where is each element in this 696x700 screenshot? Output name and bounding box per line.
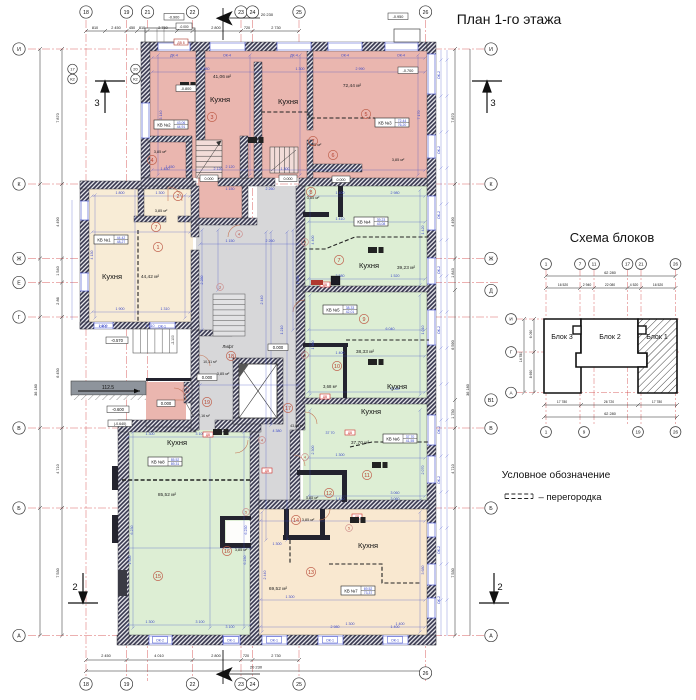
svg-text:Кухня: Кухня bbox=[361, 407, 381, 416]
svg-text:Ж: Ж bbox=[489, 256, 494, 262]
svg-text:2 070: 2 070 bbox=[421, 466, 425, 475]
svg-text:2 280: 2 280 bbox=[200, 276, 204, 285]
svg-text:1 450: 1 450 bbox=[161, 167, 170, 171]
svg-text:2 730: 2 730 bbox=[271, 654, 281, 658]
svg-text:1 310: 1 310 bbox=[146, 324, 155, 328]
svg-text:Блок 3: Блок 3 bbox=[551, 334, 573, 341]
svg-text:1 410: 1 410 bbox=[336, 497, 345, 501]
svg-text:В: В bbox=[489, 426, 493, 432]
svg-text:-0.700: -0.700 bbox=[403, 69, 414, 73]
svg-text:Ж: Ж bbox=[17, 256, 22, 262]
svg-text:ОК-2: ОК-2 bbox=[437, 146, 441, 154]
svg-text:26: 26 bbox=[423, 10, 429, 16]
svg-text:2 120: 2 120 bbox=[226, 165, 235, 169]
svg-text:0.000: 0.000 bbox=[202, 375, 213, 380]
svg-text:ДВ: ДВ bbox=[348, 431, 352, 435]
svg-text:Кухня: Кухня bbox=[167, 438, 187, 447]
svg-text:3: 3 bbox=[219, 285, 221, 289]
svg-text:К2: К2 bbox=[133, 76, 138, 81]
svg-text:16 520: 16 520 bbox=[558, 283, 568, 287]
svg-text:3,85 м²: 3,85 м² bbox=[306, 495, 319, 500]
svg-text:20 230: 20 230 bbox=[261, 12, 274, 17]
svg-text:2 730: 2 730 bbox=[271, 26, 281, 30]
svg-text:1 420: 1 420 bbox=[421, 226, 425, 235]
svg-text:8 690: 8 690 bbox=[529, 370, 533, 379]
svg-text:69,52 м²: 69,52 м² bbox=[269, 586, 288, 592]
svg-text:Кухня: Кухня bbox=[210, 95, 230, 104]
svg-text:6 040: 6 040 bbox=[386, 327, 395, 331]
svg-text:2 800: 2 800 bbox=[211, 654, 221, 658]
svg-text:Кухня: Кухня bbox=[278, 97, 298, 106]
svg-text:7 530: 7 530 bbox=[56, 568, 60, 578]
svg-text:3,85 м²: 3,85 м² bbox=[392, 157, 405, 162]
svg-text:-0.950: -0.950 bbox=[393, 15, 404, 19]
svg-text:85,52 м²: 85,52 м² bbox=[158, 492, 177, 498]
svg-text:Г: Г bbox=[18, 315, 21, 321]
svg-text:0.000: 0.000 bbox=[273, 345, 284, 350]
svg-text:-0.570: -0.570 bbox=[111, 338, 124, 343]
svg-text:1 410: 1 410 bbox=[336, 217, 345, 221]
svg-text:26: 26 bbox=[423, 671, 429, 677]
svg-text:4 710: 4 710 bbox=[451, 464, 455, 474]
svg-text:2 750: 2 750 bbox=[158, 26, 168, 30]
svg-text:2 120: 2 120 bbox=[214, 167, 223, 171]
svg-text:39,23: 39,23 bbox=[377, 218, 386, 222]
svg-text:Б: Б bbox=[489, 506, 493, 512]
svg-text:3,85 м²: 3,85 м² bbox=[302, 517, 315, 522]
svg-text:10: 10 bbox=[334, 364, 340, 370]
svg-text:1: 1 bbox=[545, 430, 548, 435]
svg-text:ОК-4: ОК-4 bbox=[397, 54, 405, 58]
svg-text:7 170: 7 170 bbox=[417, 111, 421, 120]
svg-text:20 230: 20 230 bbox=[250, 665, 263, 670]
svg-text:ОК-1: ОК-1 bbox=[158, 325, 166, 329]
svg-text:3 060: 3 060 bbox=[391, 491, 400, 495]
svg-text:7: 7 bbox=[312, 139, 315, 145]
svg-text:26: 26 bbox=[673, 262, 679, 267]
svg-text:1 500: 1 500 bbox=[128, 556, 132, 565]
svg-text:1 310: 1 310 bbox=[161, 307, 170, 311]
svg-text:-0.000: -0.000 bbox=[179, 25, 188, 29]
svg-text:7 870: 7 870 bbox=[451, 113, 455, 123]
svg-text:1 400: 1 400 bbox=[391, 625, 400, 629]
svg-text:0.000: 0.000 bbox=[205, 177, 214, 181]
svg-text:3,85 м²: 3,85 м² bbox=[235, 547, 248, 552]
svg-text:2 440: 2 440 bbox=[263, 571, 267, 580]
svg-text:2 940: 2 940 bbox=[583, 283, 592, 287]
svg-text:6 450: 6 450 bbox=[56, 368, 60, 378]
svg-text:5: 5 bbox=[365, 112, 368, 118]
svg-text:2 980: 2 980 bbox=[331, 625, 340, 629]
svg-text:ОК-1: ОК-1 bbox=[227, 639, 235, 643]
svg-text:0.000: 0.000 bbox=[284, 177, 293, 181]
svg-text:План 1-го этажа: План 1-го этажа bbox=[457, 11, 562, 27]
svg-text:89,31: 89,31 bbox=[171, 462, 180, 466]
svg-text:112.5: 112.5 bbox=[102, 385, 114, 391]
svg-text:43,08: 43,08 bbox=[377, 222, 386, 226]
svg-text:Б: Б bbox=[17, 506, 21, 512]
svg-text:2 440: 2 440 bbox=[260, 296, 264, 305]
svg-text:Лифт: Лифт bbox=[222, 344, 234, 349]
svg-text:72,44: 72,44 bbox=[398, 119, 407, 123]
svg-text:22: 22 bbox=[190, 10, 196, 16]
svg-text:69,52: 69,52 bbox=[364, 587, 373, 591]
svg-text:-0.600: -0.600 bbox=[112, 407, 125, 412]
svg-text:19: 19 bbox=[124, 10, 130, 16]
svg-text:1 980: 1 980 bbox=[311, 341, 315, 350]
svg-text:КВ №5: КВ №5 bbox=[326, 307, 340, 312]
svg-text:5: 5 bbox=[348, 526, 350, 530]
svg-text:18: 18 bbox=[83, 10, 89, 16]
svg-text:3,85 м²: 3,85 м² bbox=[154, 149, 167, 154]
svg-text:2: 2 bbox=[497, 582, 502, 593]
svg-text:43,06: 43,06 bbox=[177, 121, 186, 125]
svg-text:В1: В1 bbox=[488, 398, 494, 404]
svg-text:1 300: 1 300 bbox=[146, 620, 155, 624]
svg-text:17: 17 bbox=[625, 262, 631, 267]
svg-text:19: 19 bbox=[635, 430, 641, 435]
svg-text:4 490: 4 490 bbox=[56, 217, 60, 227]
svg-text:4 130: 4 130 bbox=[90, 251, 94, 260]
svg-text:37,70: 37,70 bbox=[406, 435, 415, 439]
svg-text:2 980: 2 980 bbox=[391, 191, 400, 195]
svg-text:Кухня: Кухня bbox=[387, 382, 407, 391]
svg-text:ДВ: ДВ bbox=[206, 433, 210, 437]
svg-text:6 230: 6 230 bbox=[130, 526, 134, 535]
svg-text:62 280: 62 280 bbox=[604, 412, 616, 416]
svg-text:1 300: 1 300 bbox=[286, 595, 295, 599]
svg-text:2: 2 bbox=[177, 194, 180, 200]
svg-text:5: 5 bbox=[245, 510, 247, 514]
svg-text:ОК-2: ОК-2 bbox=[437, 211, 441, 219]
svg-text:1 540: 1 540 bbox=[56, 266, 60, 276]
svg-text:1 400: 1 400 bbox=[336, 191, 345, 195]
svg-text:14 780: 14 780 bbox=[519, 352, 523, 362]
svg-text:17 780: 17 780 bbox=[652, 400, 662, 404]
svg-text:19: 19 bbox=[124, 682, 130, 688]
svg-text:3: 3 bbox=[94, 98, 99, 109]
svg-text:23: 23 bbox=[238, 10, 244, 16]
svg-text:1 300: 1 300 bbox=[281, 167, 290, 171]
svg-text:ОК-2: ОК-2 bbox=[156, 639, 164, 643]
svg-text:ДВ: ДВ bbox=[323, 283, 327, 287]
svg-text:7: 7 bbox=[338, 258, 341, 264]
svg-text:-2.100: -2.100 bbox=[171, 335, 175, 345]
svg-text:39,23 м²: 39,23 м² bbox=[397, 265, 416, 271]
svg-text:КВ №8: КВ №8 bbox=[151, 459, 165, 464]
svg-text:72,44 м²: 72,44 м² bbox=[343, 83, 362, 89]
svg-text:Кухня: Кухня bbox=[359, 261, 379, 270]
svg-text:-0.800: -0.800 bbox=[181, 87, 192, 91]
svg-text:6 230: 6 230 bbox=[243, 556, 247, 565]
svg-text:А: А bbox=[17, 633, 21, 639]
svg-text:21: 21 bbox=[638, 262, 644, 267]
svg-text:9: 9 bbox=[583, 430, 586, 435]
svg-text:42,01: 42,01 bbox=[346, 310, 355, 314]
svg-text:20: 20 bbox=[133, 66, 138, 71]
svg-text:Блок 2: Блок 2 bbox=[599, 334, 621, 341]
svg-text:7,16 м²: 7,16 м² bbox=[198, 414, 210, 418]
svg-text:ОК-2: ОК-2 bbox=[437, 326, 441, 334]
svg-text:ОК-1: ОК-1 bbox=[326, 639, 334, 643]
svg-text:2 260: 2 260 bbox=[266, 239, 275, 243]
svg-text:ДК-4: ДК-4 bbox=[170, 54, 178, 58]
svg-text:2 980: 2 980 bbox=[201, 67, 210, 71]
svg-text:1 300: 1 300 bbox=[273, 542, 282, 546]
svg-text:5: 5 bbox=[304, 240, 306, 244]
svg-text:1 800: 1 800 bbox=[116, 191, 125, 195]
svg-text:37,70 м²: 37,70 м² bbox=[351, 440, 370, 446]
svg-text:9: 9 bbox=[363, 317, 366, 323]
svg-text:– перегородка: – перегородка bbox=[538, 492, 602, 503]
svg-text:16 520: 16 520 bbox=[653, 283, 663, 287]
svg-text:1 150: 1 150 bbox=[226, 187, 235, 191]
svg-text:1 210: 1 210 bbox=[280, 326, 284, 335]
svg-text:1: 1 bbox=[545, 262, 548, 267]
svg-text:4 380: 4 380 bbox=[273, 429, 282, 433]
svg-text:1 010: 1 010 bbox=[421, 326, 425, 335]
svg-text:(-0.640): (-0.640) bbox=[114, 422, 127, 426]
svg-text:25: 25 bbox=[296, 10, 302, 16]
svg-text:2: 2 bbox=[72, 582, 77, 593]
svg-text:6: 6 bbox=[332, 153, 335, 159]
svg-text:18: 18 bbox=[228, 354, 234, 360]
svg-text:1: 1 bbox=[185, 388, 187, 392]
svg-text:К: К bbox=[17, 182, 20, 188]
svg-text:450: 450 bbox=[129, 26, 135, 30]
svg-text:-0.900: -0.900 bbox=[169, 15, 180, 19]
svg-text:1 150: 1 150 bbox=[226, 239, 235, 243]
svg-text:КВ №6: КВ №6 bbox=[386, 436, 400, 441]
svg-text:1 900: 1 900 bbox=[116, 307, 125, 311]
svg-text:В: В bbox=[17, 426, 21, 432]
svg-text:2 450: 2 450 bbox=[101, 654, 111, 658]
svg-text:Схема блоков: Схема блоков bbox=[570, 230, 655, 245]
svg-text:7 870: 7 870 bbox=[56, 113, 60, 123]
svg-text:41,55: 41,55 bbox=[406, 439, 415, 443]
svg-text:10,31 м²: 10,31 м² bbox=[203, 360, 217, 364]
svg-text:4 400: 4 400 bbox=[311, 236, 315, 245]
svg-text:3 140: 3 140 bbox=[159, 111, 163, 120]
svg-text:76,20: 76,20 bbox=[398, 123, 407, 127]
svg-text:11: 11 bbox=[364, 473, 370, 479]
svg-text:4: 4 bbox=[238, 232, 240, 236]
svg-text:1 300: 1 300 bbox=[296, 67, 305, 71]
svg-text:24: 24 bbox=[250, 682, 256, 688]
svg-text:41,06 м²: 41,06 м² bbox=[213, 74, 232, 80]
svg-text:2 450: 2 450 bbox=[111, 26, 121, 30]
svg-text:2 300: 2 300 bbox=[311, 446, 315, 455]
svg-text:23: 23 bbox=[238, 682, 244, 688]
svg-text:44,42: 44,42 bbox=[117, 236, 126, 240]
svg-text:1: 1 bbox=[157, 245, 160, 251]
svg-text:4 010: 4 010 bbox=[154, 654, 164, 658]
svg-text:ОК-2: ОК-2 bbox=[437, 71, 441, 79]
svg-text:44,91: 44,91 bbox=[177, 125, 186, 129]
svg-text:И: И bbox=[509, 317, 512, 322]
svg-text:36 180: 36 180 bbox=[466, 384, 470, 396]
svg-text:37 70: 37 70 bbox=[326, 431, 335, 435]
svg-text:КВ №3: КВ №3 bbox=[378, 120, 392, 125]
svg-text:Е: Е bbox=[17, 280, 21, 286]
svg-text:3 100: 3 100 bbox=[226, 625, 235, 629]
svg-text:14: 14 bbox=[293, 518, 299, 524]
svg-text:36 180: 36 180 bbox=[34, 384, 38, 396]
svg-text:ОК-2: ОК-2 bbox=[437, 426, 441, 434]
svg-text:4 490: 4 490 bbox=[451, 217, 455, 227]
svg-text:ДВ: ДВ bbox=[265, 469, 269, 473]
svg-text:720: 720 bbox=[244, 26, 250, 30]
svg-text:11: 11 bbox=[592, 262, 597, 267]
svg-text:73,37: 73,37 bbox=[364, 591, 373, 595]
svg-text:1 843: 1 843 bbox=[451, 268, 455, 278]
svg-text:16: 16 bbox=[224, 549, 230, 555]
svg-text:13: 13 bbox=[308, 570, 314, 576]
svg-text:8: 8 bbox=[310, 190, 313, 196]
svg-text:3 100: 3 100 bbox=[196, 620, 205, 624]
svg-text:ОК-2: ОК-2 bbox=[99, 325, 107, 329]
svg-text:1 300: 1 300 bbox=[336, 453, 345, 457]
svg-text:44,42 м²: 44,42 м² bbox=[141, 274, 160, 280]
svg-text:1 300: 1 300 bbox=[156, 191, 165, 195]
svg-text:К: К bbox=[489, 182, 492, 188]
svg-text:38,33 м²: 38,33 м² bbox=[356, 349, 375, 355]
svg-text:1 400: 1 400 bbox=[336, 351, 345, 355]
svg-text:48,27: 48,27 bbox=[117, 240, 126, 244]
svg-text:720: 720 bbox=[243, 654, 249, 658]
svg-text:24: 24 bbox=[250, 10, 256, 16]
svg-text:38,33: 38,33 bbox=[346, 306, 355, 310]
svg-text:ОК-2: ОК-2 bbox=[437, 476, 441, 484]
svg-text:2 86: 2 86 bbox=[56, 297, 60, 304]
svg-text:6 090: 6 090 bbox=[529, 330, 533, 339]
svg-text:ДВ 8: ДВ 8 bbox=[177, 41, 184, 45]
svg-text:0.000: 0.000 bbox=[161, 401, 172, 406]
svg-text:ОК-4: ОК-4 bbox=[223, 54, 231, 58]
svg-text:Условное обозначение: Условное обозначение bbox=[502, 469, 611, 481]
svg-text:15: 15 bbox=[155, 574, 161, 580]
svg-text:1 300: 1 300 bbox=[346, 622, 355, 626]
svg-text:И: И bbox=[17, 47, 21, 53]
svg-text:43,80 м²: 43,80 м² bbox=[290, 424, 304, 428]
svg-text:7: 7 bbox=[579, 262, 582, 267]
svg-text:ДВ: ДВ bbox=[323, 395, 327, 399]
svg-text:3,85 м²: 3,85 м² bbox=[155, 208, 168, 213]
svg-text:0.000: 0.000 bbox=[337, 178, 346, 182]
svg-text:ОК-1: ОК-1 bbox=[391, 639, 399, 643]
svg-text:4: 4 bbox=[151, 158, 154, 164]
svg-text:810: 810 bbox=[139, 26, 145, 30]
svg-text:4 520: 4 520 bbox=[630, 283, 639, 287]
svg-text:ОК-4: ОК-4 bbox=[341, 54, 349, 58]
svg-text:6 590: 6 590 bbox=[451, 340, 455, 350]
svg-text:КВ №4: КВ №4 bbox=[357, 219, 371, 224]
svg-text:ОК-2: ОК-2 bbox=[437, 546, 441, 554]
svg-text:7 530: 7 530 bbox=[451, 568, 455, 578]
svg-text:КВ №2: КВ №2 bbox=[157, 122, 171, 127]
svg-text:1 300: 1 300 bbox=[146, 432, 155, 436]
svg-text:19: 19 bbox=[204, 400, 210, 406]
svg-text:4 710: 4 710 bbox=[56, 464, 60, 474]
svg-text:Кухня: Кухня bbox=[102, 272, 122, 281]
svg-text:2 800: 2 800 bbox=[211, 26, 221, 30]
svg-text:ОК-1: ОК-1 bbox=[270, 639, 278, 643]
svg-text:17 780: 17 780 bbox=[557, 400, 567, 404]
svg-text:А: А bbox=[489, 633, 493, 639]
svg-text:4: 4 bbox=[261, 438, 263, 442]
svg-text:3 060: 3 060 bbox=[391, 497, 400, 501]
svg-text:6: 6 bbox=[304, 353, 306, 357]
svg-text:1 750: 1 750 bbox=[451, 409, 455, 419]
svg-text:22: 22 bbox=[190, 682, 196, 688]
svg-text:25: 25 bbox=[296, 682, 302, 688]
svg-text:Блок 1: Блок 1 bbox=[646, 334, 668, 341]
svg-text:ОК-2: ОК-2 bbox=[437, 596, 441, 604]
svg-text:3,68 м²: 3,68 м² bbox=[323, 384, 338, 389]
svg-text:17: 17 bbox=[70, 66, 75, 71]
svg-text:85,52: 85,52 bbox=[171, 458, 180, 462]
svg-text:КВ №7: КВ №7 bbox=[344, 588, 358, 593]
svg-text:3: 3 bbox=[211, 115, 214, 121]
svg-text:12: 12 bbox=[326, 491, 332, 497]
svg-text:7: 7 bbox=[155, 225, 158, 231]
svg-text:810: 810 bbox=[92, 26, 98, 30]
svg-text:2 260: 2 260 bbox=[266, 187, 275, 191]
svg-text:1 300: 1 300 bbox=[296, 276, 300, 285]
svg-text:3,85 м²: 3,85 м² bbox=[217, 371, 230, 376]
svg-text:К2: К2 bbox=[70, 76, 75, 81]
svg-text:ДК-4: ДК-4 bbox=[290, 54, 298, 58]
svg-text:4: 4 bbox=[304, 455, 306, 459]
svg-text:6 230: 6 230 bbox=[244, 526, 248, 535]
svg-text:И: И bbox=[489, 47, 493, 53]
svg-text:18: 18 bbox=[83, 682, 89, 688]
svg-text:21: 21 bbox=[145, 10, 151, 16]
svg-text:3 680: 3 680 bbox=[421, 566, 425, 575]
svg-text:3: 3 bbox=[490, 98, 495, 109]
svg-text:26 720: 26 720 bbox=[604, 400, 614, 404]
svg-text:17: 17 bbox=[285, 406, 291, 412]
svg-text:1 520: 1 520 bbox=[391, 274, 400, 278]
svg-text:КВ №1: КВ №1 bbox=[97, 237, 111, 242]
svg-text:22 080: 22 080 bbox=[605, 283, 615, 287]
svg-text:62 280: 62 280 bbox=[604, 271, 616, 275]
svg-text:2 990: 2 990 bbox=[356, 67, 365, 71]
svg-text:ОК-2: ОК-2 bbox=[437, 266, 441, 274]
svg-text:Кухня: Кухня bbox=[358, 541, 378, 550]
svg-text:Д: Д bbox=[489, 288, 493, 294]
svg-text:26: 26 bbox=[673, 430, 679, 435]
